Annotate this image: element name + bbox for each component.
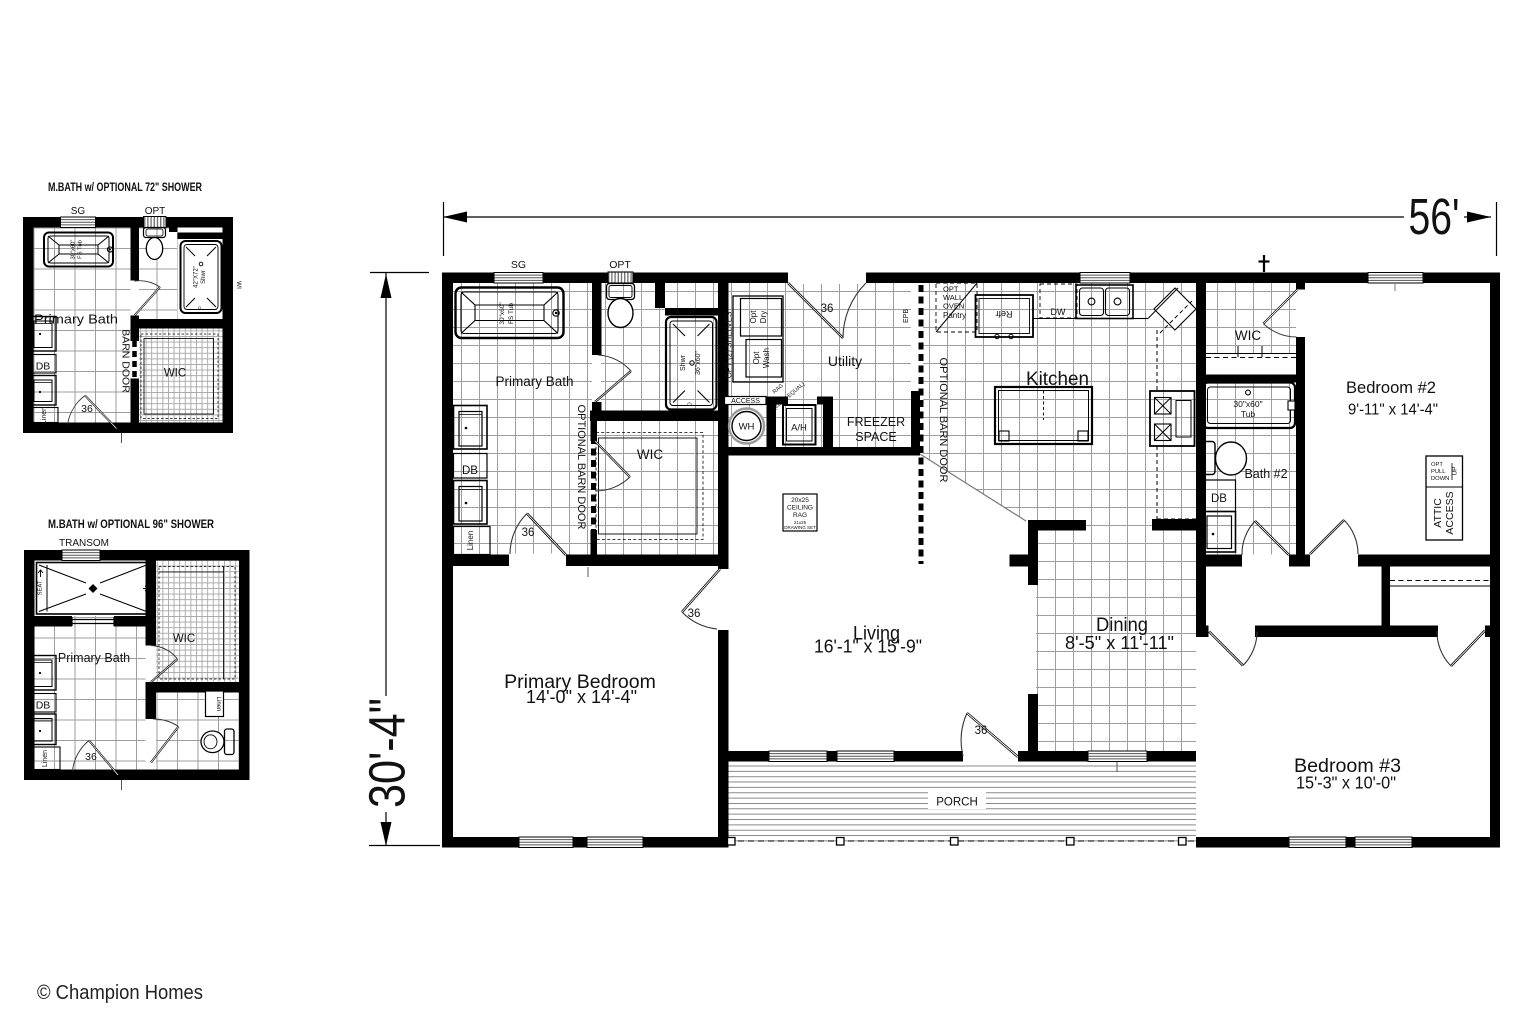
svg-text:36: 36 [85, 751, 97, 763]
svg-text:DB: DB [36, 361, 51, 373]
svg-text:WIC: WIC [1235, 328, 1261, 343]
svg-text:Shwr: Shwr [680, 354, 687, 371]
svg-text:36: 36 [975, 725, 988, 737]
svg-text:FS Tub: FS Tub [78, 240, 84, 259]
svg-text:14'-0" x 14'-4": 14'-0" x 14'-4" [526, 687, 637, 707]
svg-text:UP: UP [1452, 466, 1459, 475]
svg-text:Linen: Linen [41, 407, 48, 424]
svg-text:56': 56' [1409, 188, 1460, 245]
svg-text:SG: SG [71, 206, 86, 217]
svg-text:FREEZER: FREEZER [847, 415, 905, 429]
svg-text:EPB: EPB [903, 309, 910, 323]
svg-text:DOWN: DOWN [1431, 476, 1449, 482]
svg-text:36"x60": 36"x60" [695, 350, 702, 375]
svg-text:M.BATH w/ OPTIONAL 96" SHOWER: M.BATH w/ OPTIONAL 96" SHOWER [48, 517, 214, 531]
svg-text:Refr: Refr [995, 309, 1012, 319]
svg-text:9'-11" x 14'-4": 9'-11" x 14'-4" [1348, 402, 1438, 419]
svg-text:SG: SG [511, 259, 526, 271]
svg-text:OPT: OPT [609, 259, 631, 271]
svg-text:DRAWING SET: DRAWING SET [784, 525, 816, 530]
svg-text:16'-1" x 15'-9": 16'-1" x 15'-9" [814, 637, 922, 657]
svg-text:36: 36 [821, 303, 834, 315]
svg-text:OVEN: OVEN [943, 302, 964, 311]
svg-text:Linen: Linen [215, 697, 221, 712]
svg-text:Shwr: Shwr [201, 270, 207, 284]
svg-text:OPT (2) SHELVES: OPT (2) SHELVES [725, 312, 734, 379]
svg-text:ACCESS: ACCESS [1444, 491, 1456, 534]
svg-text:© Champion Homes: © Champion Homes [37, 981, 203, 1004]
svg-text:Wash: Wash [762, 348, 771, 368]
svg-text:Pantry: Pantry [943, 311, 966, 320]
svg-text:30"x60": 30"x60" [71, 240, 77, 260]
svg-text:OPT: OPT [145, 206, 166, 217]
svg-text:8'-5" x 11'-11": 8'-5" x 11'-11" [1065, 633, 1174, 653]
svg-text:OPTIONAL BARN DOOR: OPTIONAL BARN DOOR [575, 405, 587, 530]
svg-text:Tub: Tub [1241, 409, 1256, 419]
svg-text:OPTIONAL BARN DOOR: OPTIONAL BARN DOOR [937, 358, 949, 483]
svg-text:BARN DOOR: BARN DOOR [120, 329, 132, 393]
svg-text:36: 36 [688, 608, 701, 620]
svg-text:CEILING: CEILING [787, 505, 813, 512]
svg-text:SPACE: SPACE [855, 430, 896, 444]
svg-text:DW: DW [1051, 307, 1066, 317]
svg-text:A/H: A/H [791, 423, 807, 434]
svg-text:15'-3" x 10'-0": 15'-3" x 10'-0" [1296, 773, 1396, 793]
svg-text:PORCH: PORCH [936, 797, 978, 809]
svg-text:30"x60": 30"x60" [1233, 399, 1262, 409]
svg-text:WH: WH [739, 422, 755, 433]
svg-text:Opt: Opt [752, 351, 761, 365]
svg-text:TRANSOM: TRANSOM [59, 538, 109, 549]
svg-text:20x25: 20x25 [791, 497, 809, 504]
svg-text:SEAT: SEAT [38, 580, 44, 595]
svg-text:Linen: Linen [42, 750, 49, 767]
svg-text:Linen: Linen [466, 531, 475, 551]
svg-text:Primary Bath: Primary Bath [495, 374, 573, 389]
svg-text:36: 36 [81, 403, 93, 415]
svg-text:30'-4": 30'-4" [359, 698, 416, 808]
svg-text:Dry: Dry [759, 311, 768, 323]
svg-text:WIC: WIC [164, 368, 186, 380]
svg-text:ACCESS: ACCESS [731, 398, 760, 405]
svg-text:FS Tub: FS Tub [508, 303, 515, 324]
svg-text:DB: DB [36, 700, 51, 712]
svg-text:DB: DB [1211, 493, 1227, 505]
svg-text:WIC: WIC [173, 633, 195, 645]
svg-text:ATTIC: ATTIC [1432, 498, 1444, 528]
svg-text:WI: WI [235, 281, 242, 289]
svg-text:Primary Bath: Primary Bath [34, 312, 118, 327]
svg-text:WIC: WIC [637, 447, 663, 462]
svg-text:D: D [688, 402, 694, 406]
svg-text:Opt: Opt [749, 310, 758, 324]
svg-text:30"x60": 30"x60" [499, 302, 506, 325]
svg-text:42"X72": 42"X72" [194, 266, 200, 288]
svg-text:Bath #2: Bath #2 [1244, 467, 1287, 481]
svg-text:OPT: OPT [1431, 462, 1443, 468]
svg-text:RAG: RAG [793, 512, 807, 519]
svg-text:DB: DB [462, 465, 478, 477]
svg-text:36: 36 [522, 527, 535, 539]
svg-text:Primary Bath: Primary Bath [58, 651, 130, 665]
svg-text:Bedroom #2: Bedroom #2 [1346, 379, 1436, 397]
svg-text:M.BATH w/ OPTIONAL 72" SHOWER: M.BATH w/ OPTIONAL 72" SHOWER [48, 180, 202, 194]
svg-text:Utility: Utility [828, 353, 862, 369]
svg-text:PULL: PULL [1431, 469, 1446, 475]
